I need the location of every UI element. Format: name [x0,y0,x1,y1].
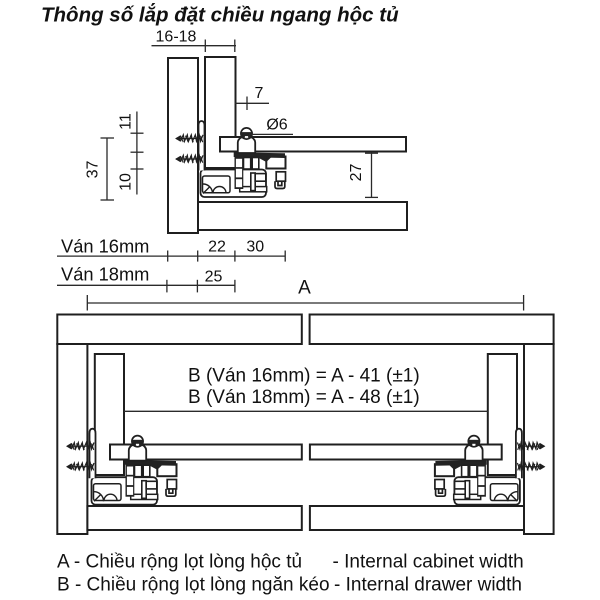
svg-text:A - Chiều rộng lọt lòng hộc tủ: A - Chiều rộng lọt lòng hộc tủ [57,552,302,573]
svg-text:Ván 18mm: Ván 18mm [61,264,149,285]
svg-text:B - Chiều rộng lọt lòng ngăn k: B - Chiều rộng lọt lòng ngăn kéo [57,575,330,596]
svg-text:- Internal drawer width: - Internal drawer width [334,575,522,596]
svg-text:11: 11 [118,113,135,130]
svg-text:30: 30 [246,238,264,255]
svg-text:25: 25 [205,268,223,285]
svg-text:Ván 16mm: Ván 16mm [61,236,149,257]
svg-text:A: A [298,278,311,299]
svg-text:10: 10 [118,173,135,191]
svg-text:27: 27 [348,164,365,182]
svg-text:7: 7 [255,85,264,102]
svg-text:16-18: 16-18 [156,29,197,46]
svg-text:- Internal cabinet width: - Internal cabinet width [333,552,524,573]
svg-text:37: 37 [85,161,102,179]
svg-text:B (Ván 16mm) = A - 41 (±1): B (Ván 16mm) = A - 41 (±1) [188,366,420,387]
svg-text:22: 22 [208,238,226,255]
svg-text:B (Ván 18mm) = A - 48 (±1): B (Ván 18mm) = A - 48 (±1) [188,387,420,408]
svg-text:Ø6: Ø6 [266,117,287,134]
svg-text:Thông số lắp đặt chiều ngang h: Thông số lắp đặt chiều ngang hộc tủ [41,4,399,27]
